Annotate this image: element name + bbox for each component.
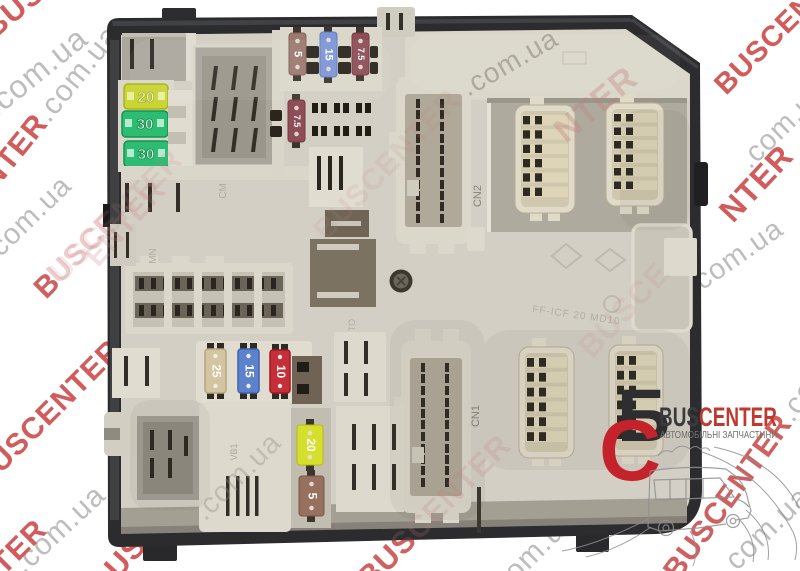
svg-text:АВТОМОБІЛЬНІ ЗАПЧАСТИНИ: АВТОМОБІЛЬНІ ЗАПЧАСТИНИ <box>660 430 777 441</box>
svg-text:С: С <box>599 403 661 499</box>
svg-text:MN: MN <box>148 248 159 264</box>
svg-text:25: 25 <box>209 364 223 378</box>
svg-text:BUSCENTER: BUSCENTER <box>659 402 777 432</box>
svg-text:15: 15 <box>242 364 256 378</box>
svg-text:30: 30 <box>137 116 154 133</box>
svg-text:CM: CM <box>218 183 229 199</box>
svg-text:CN2: CN2 <box>472 185 484 207</box>
svg-text:10: 10 <box>274 365 288 379</box>
svg-text:5: 5 <box>305 493 319 500</box>
svg-text:TO: TO <box>347 319 357 331</box>
svg-text:20: 20 <box>304 438 318 452</box>
svg-text:7.5: 7.5 <box>292 115 302 128</box>
